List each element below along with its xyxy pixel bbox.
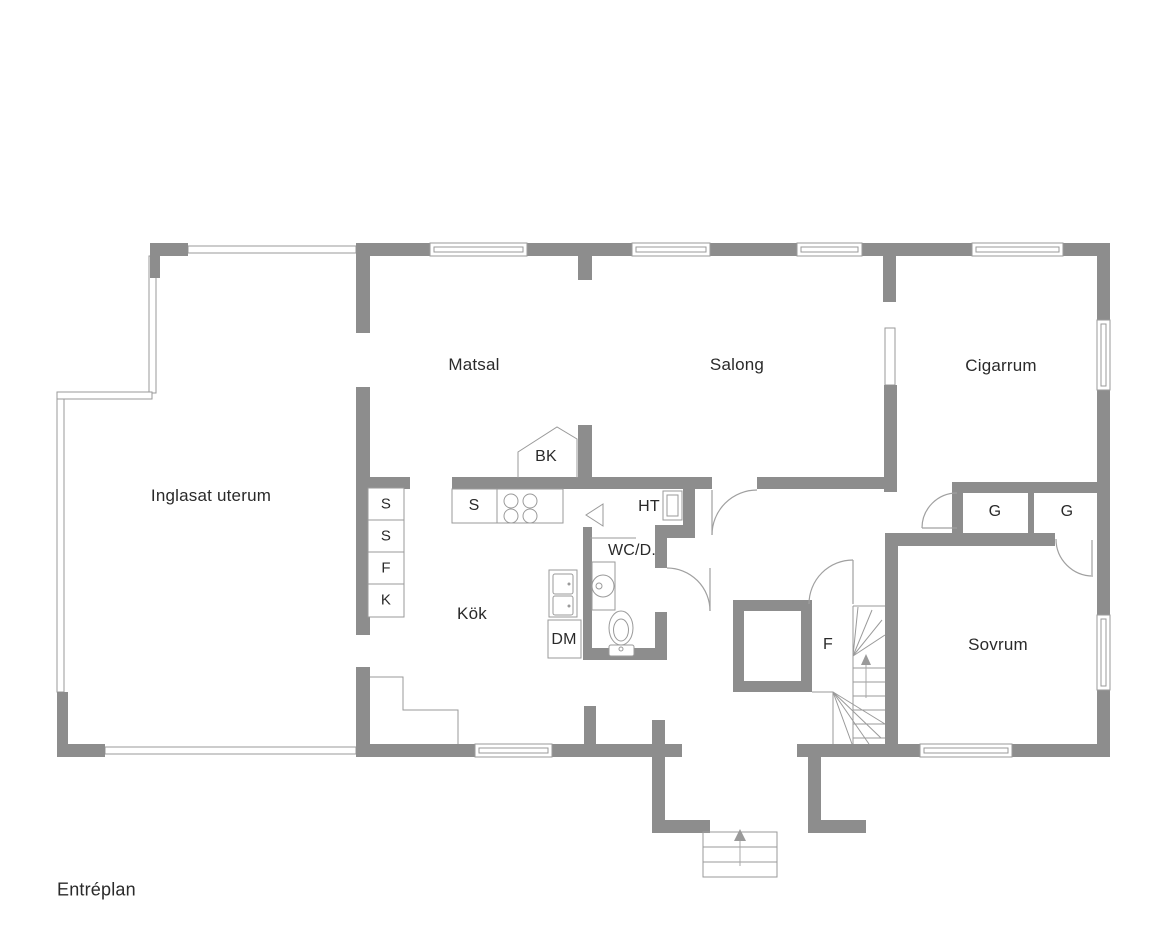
label-counter-s: S xyxy=(469,497,480,515)
kitchen-sink-icon xyxy=(549,570,577,617)
label-cabinet-s1: S xyxy=(381,496,391,513)
room-label-inglasat-uterum: Inglasat uterum xyxy=(151,486,271,506)
staircase xyxy=(812,606,885,744)
window xyxy=(797,243,862,256)
wc-fixtures xyxy=(586,491,682,656)
room-label-matsal: Matsal xyxy=(448,355,499,375)
label-ht: HT xyxy=(638,498,660,516)
room-label-salong: Salong xyxy=(710,355,764,375)
room-label-kok: Kök xyxy=(457,604,487,624)
label-cabinet-k: K xyxy=(381,592,391,609)
door-cigarrum xyxy=(922,493,957,528)
stairs-up-arrow xyxy=(861,654,871,665)
door-sovrum xyxy=(1056,539,1093,576)
door-f-closet xyxy=(809,560,853,604)
room-label-wc: WC/D. xyxy=(608,542,656,560)
entry-direction-arrow xyxy=(734,829,746,841)
label-cabinet-f: F xyxy=(381,560,390,577)
label-fireplace-bk: BK xyxy=(535,448,557,466)
entry-steps xyxy=(703,829,777,877)
window xyxy=(1097,320,1110,390)
shower-icon xyxy=(586,504,603,526)
label-wardrobe-g-right: G xyxy=(1061,503,1074,521)
window xyxy=(475,744,552,757)
floor-plan-drawing xyxy=(0,0,1170,926)
window xyxy=(632,243,710,256)
shaft-box xyxy=(739,606,807,687)
entry-porch xyxy=(652,720,866,833)
label-cabinet-s2: S xyxy=(381,528,391,545)
room-label-sovrum: Sovrum xyxy=(968,635,1028,655)
label-dishwasher-dm: DM xyxy=(551,631,576,649)
door-wc xyxy=(667,568,710,611)
floor-plan: Inglasat uterum Matsal Salong Cigarrum K… xyxy=(0,0,1170,926)
room-label-cigarrum: Cigarrum xyxy=(965,356,1037,376)
toilet-icon xyxy=(609,611,634,656)
label-wardrobe-g-left: G xyxy=(989,503,1002,521)
washbasin-icon xyxy=(592,562,615,610)
window xyxy=(1097,615,1110,690)
door-hall-salong xyxy=(712,490,757,535)
window xyxy=(972,243,1063,256)
window xyxy=(430,243,527,256)
ht-unit-icon xyxy=(663,491,682,520)
label-storage-f: F xyxy=(823,636,833,654)
window xyxy=(920,744,1012,757)
plan-title: Entréplan xyxy=(57,880,136,901)
kitchen-step-lines xyxy=(370,677,458,744)
